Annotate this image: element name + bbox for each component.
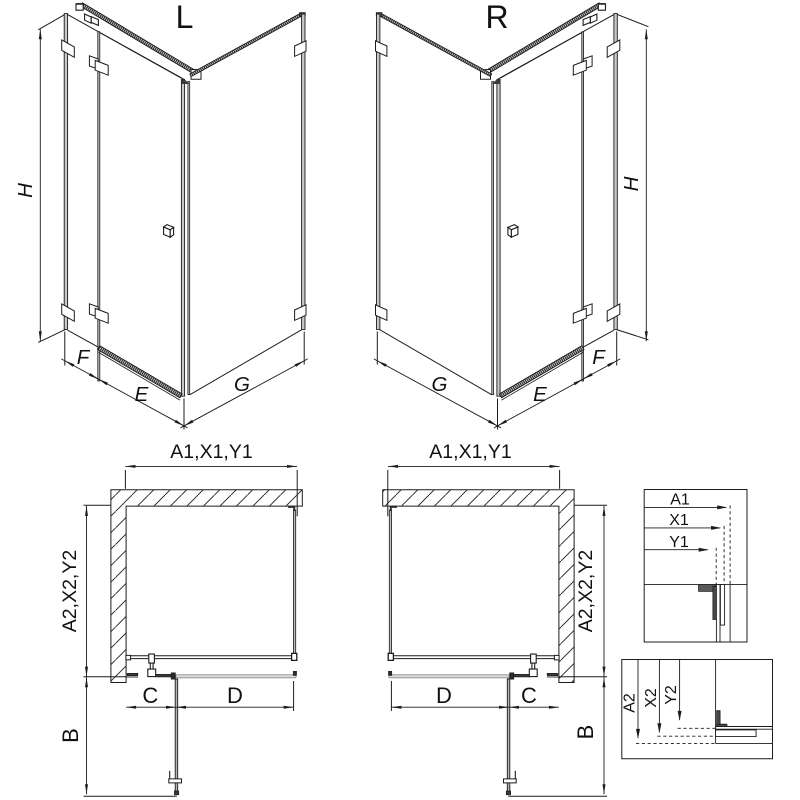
svg-text:E: E [135, 383, 149, 406]
svg-text:F: F [77, 346, 91, 369]
svg-text:D: D [227, 683, 243, 708]
svg-text:H: H [620, 176, 643, 191]
svg-text:A2,X2,Y2: A2,X2,Y2 [575, 550, 597, 632]
svg-text:A1,X1,Y1: A1,X1,Y1 [170, 441, 252, 463]
svg-text:G: G [432, 373, 448, 396]
svg-text:C: C [521, 683, 537, 708]
svg-text:A2,X2,Y2: A2,X2,Y2 [59, 550, 81, 632]
svg-text:B: B [58, 728, 83, 743]
svg-text:X2: X2 [643, 688, 660, 708]
svg-text:X1: X1 [669, 512, 689, 529]
svg-text:G: G [234, 373, 250, 396]
svg-text:E: E [533, 383, 547, 406]
svg-text:R: R [485, 0, 508, 35]
svg-text:D: D [436, 683, 452, 708]
svg-text:A2: A2 [622, 693, 639, 713]
svg-text:C: C [142, 683, 158, 708]
svg-text:L: L [176, 0, 194, 35]
svg-text:H: H [14, 183, 37, 198]
svg-text:B: B [573, 725, 598, 740]
svg-text:Y2: Y2 [663, 685, 680, 705]
svg-text:F: F [592, 346, 606, 369]
svg-text:A1,X1,Y1: A1,X1,Y1 [429, 441, 511, 463]
svg-text:A1: A1 [670, 492, 690, 509]
svg-text:Y1: Y1 [669, 534, 689, 551]
